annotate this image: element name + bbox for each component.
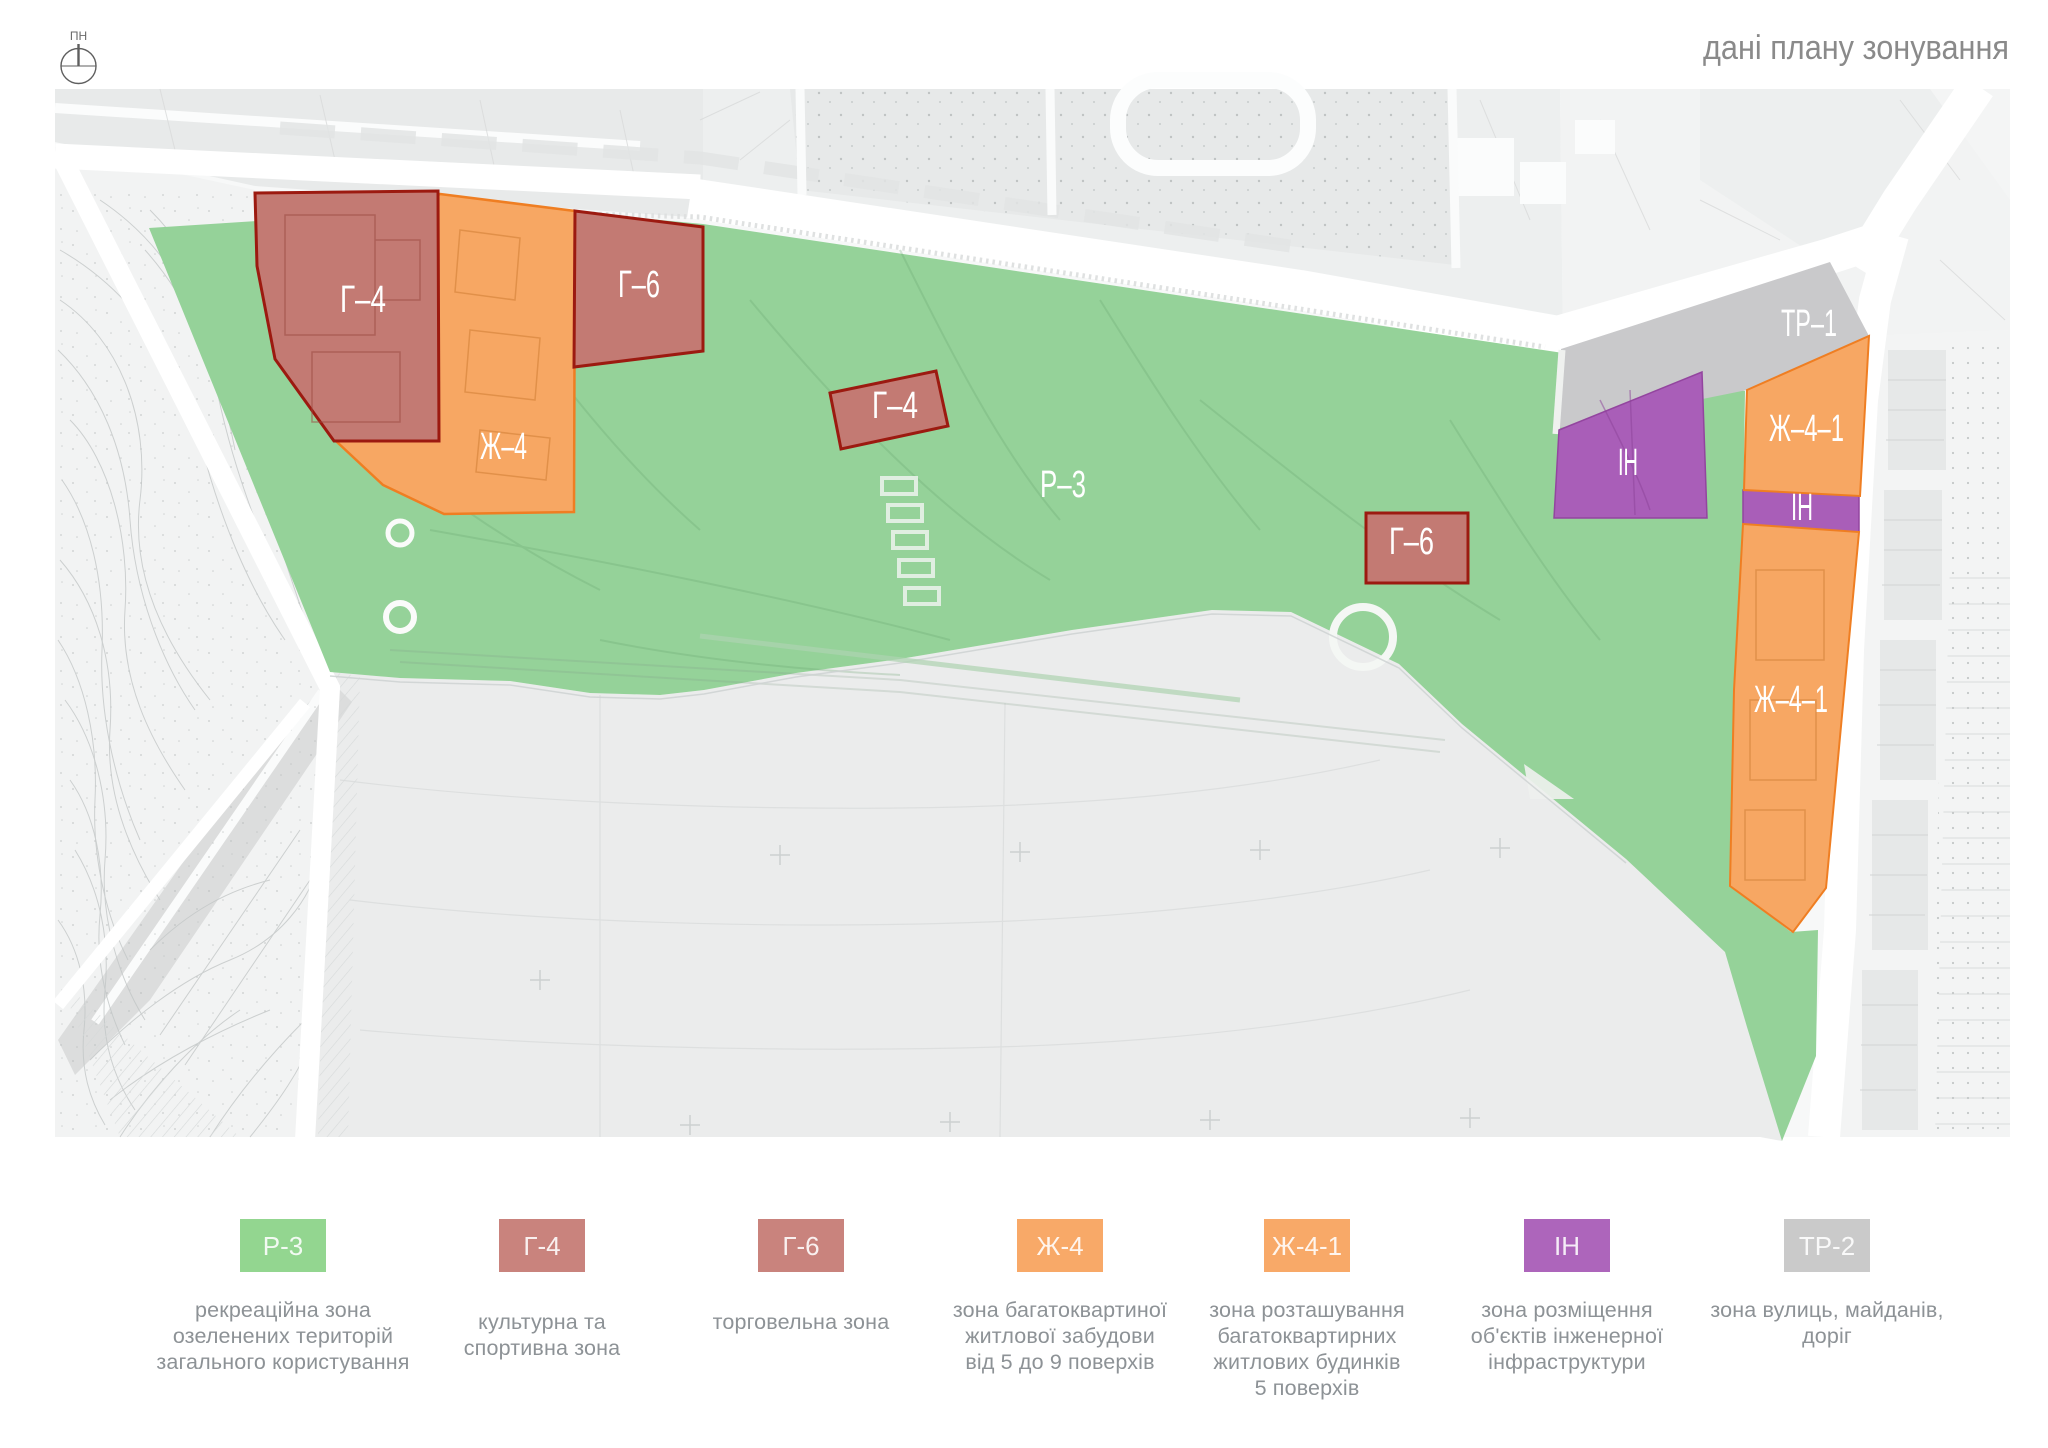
svg-text:ТР–1: ТР–1: [1781, 303, 1837, 345]
svg-text:торговельна зона: торговельна зона: [713, 1310, 890, 1334]
svg-text:дані плану зонування: дані плану зонування: [1703, 29, 2009, 67]
svg-text:об'єктів інженерної: об'єктів інженерної: [1471, 1324, 1663, 1348]
svg-text:загального користування: загального користування: [156, 1350, 409, 1374]
svg-text:житлової забудови: житлової забудови: [965, 1324, 1155, 1348]
svg-text:спортивна зона: спортивна зона: [464, 1336, 620, 1360]
svg-text:Г–6: Г–6: [1389, 521, 1434, 563]
svg-text:Г–6: Г–6: [618, 264, 660, 306]
svg-text:5 поверхів: 5 поверхів: [1255, 1376, 1360, 1400]
svg-text:культурна та: культурна та: [478, 1310, 606, 1334]
svg-text:Ж–4–1: Ж–4–1: [1754, 679, 1828, 721]
svg-text:від 5 до 9 поверхів: від 5 до 9 поверхів: [965, 1350, 1154, 1374]
svg-text:рекреаційна зона: рекреаційна зона: [195, 1298, 371, 1322]
svg-text:ІН: ІН: [1791, 487, 1813, 529]
svg-text:Г-6: Г-6: [782, 1231, 819, 1261]
svg-text:ТР-2: ТР-2: [1799, 1231, 1855, 1261]
svg-text:Г-4: Г-4: [523, 1231, 560, 1261]
svg-text:зона вулиць, майданів,: зона вулиць, майданів,: [1710, 1298, 1943, 1322]
svg-text:ІН: ІН: [1554, 1231, 1580, 1261]
svg-text:Р–3: Р–3: [1040, 464, 1086, 506]
svg-text:доріг: доріг: [1802, 1324, 1852, 1348]
svg-text:інфраструктури: інфраструктури: [1488, 1350, 1646, 1374]
svg-text:ПН: ПН: [70, 29, 87, 43]
svg-text:озеленених територій: озеленених територій: [173, 1324, 393, 1348]
svg-text:Ж–4: Ж–4: [480, 426, 527, 468]
svg-text:Р-3: Р-3: [263, 1231, 303, 1261]
svg-text:Ж-4-1: Ж-4-1: [1272, 1231, 1342, 1261]
svg-text:ІН: ІН: [1618, 442, 1638, 484]
svg-text:Г–4: Г–4: [340, 279, 386, 321]
svg-text:зона розташування: зона розташування: [1209, 1298, 1405, 1322]
svg-text:Г–4: Г–4: [872, 385, 918, 427]
svg-text:зона багатоквартиної: зона багатоквартиної: [953, 1298, 1167, 1322]
svg-text:багатоквартирних: багатоквартирних: [1217, 1324, 1396, 1348]
svg-text:Ж-4: Ж-4: [1036, 1231, 1083, 1261]
svg-text:житлових будинків: житлових будинків: [1213, 1350, 1400, 1374]
svg-text:зона розміщення: зона розміщення: [1481, 1298, 1653, 1322]
svg-text:Ж–4–1: Ж–4–1: [1769, 408, 1844, 450]
